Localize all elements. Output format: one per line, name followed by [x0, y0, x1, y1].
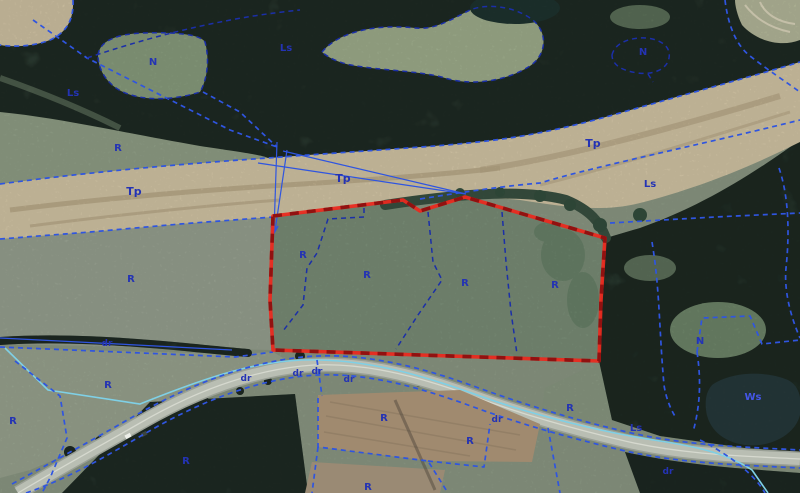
land-use-label-ls: Ls [280, 43, 292, 54]
land-use-label-tp: Tp [126, 185, 142, 198]
land-use-label-ls: Ls [644, 179, 656, 190]
land-use-label-n: N [696, 336, 704, 347]
land-use-label-dr: dr [241, 374, 252, 384]
land-use-label-dr: dr [344, 375, 355, 385]
land-use-label-r: R [9, 416, 17, 427]
land-use-label-r: R [380, 413, 388, 424]
land-use-label-r: R [299, 250, 307, 261]
land-use-label-dr: dr [102, 339, 113, 349]
land-use-label-dr: dr [312, 367, 323, 377]
land-use-label-r: R [566, 403, 574, 414]
land-use-label-r: R [182, 456, 190, 467]
map-viewport[interactable]: NLsRLsNTpTpTpLsRRRRRdrRRdrdrdrdrRdrRRRNW… [0, 0, 800, 493]
land-use-label-ws: Ws [745, 392, 762, 403]
land-use-label-ls: Ls [67, 88, 79, 99]
land-use-label-r: R [466, 436, 474, 447]
land-use-label-tp: Tp [335, 172, 351, 185]
land-use-label-r: R [364, 482, 372, 493]
land-use-label-dr: dr [663, 467, 674, 477]
land-use-label-ls: Ls [630, 423, 642, 434]
land-use-label-r: R [461, 278, 469, 289]
land-use-label-n: N [149, 57, 157, 68]
map-canvas: NLsRLsNTpTpTpLsRRRRRdrRRdrdrdrdrRdrRRRNW… [0, 0, 800, 493]
land-use-label-r: R [114, 143, 122, 154]
land-use-label-r: R [104, 380, 112, 391]
land-use-label-n: N [639, 47, 647, 58]
land-use-label-r: R [363, 270, 371, 281]
land-use-label-dr: dr [492, 415, 503, 425]
land-use-label-dr: dr [293, 369, 304, 379]
land-use-label-r: R [127, 274, 135, 285]
land-use-label-r: R [551, 280, 559, 291]
land-use-label-tp: Tp [585, 137, 601, 150]
